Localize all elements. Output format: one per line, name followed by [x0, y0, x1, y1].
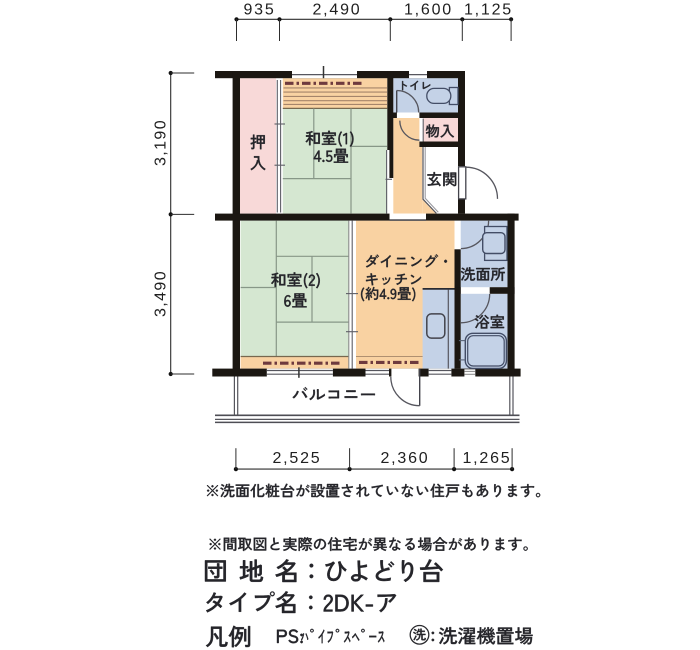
svg-text:2,490: 2,490 — [312, 2, 361, 19]
svg-text:3,190: 3,190 — [152, 119, 169, 166]
svg-text:2,525: 2,525 — [272, 450, 321, 467]
svg-text:1,600: 1,600 — [404, 2, 453, 19]
svg-text:1,265: 1,265 — [462, 450, 511, 467]
svg-text:2,360: 2,360 — [380, 450, 429, 467]
svg-text:3,490: 3,490 — [152, 270, 169, 317]
svg-text:935: 935 — [243, 2, 275, 19]
svg-text:1,125: 1,125 — [464, 2, 513, 19]
